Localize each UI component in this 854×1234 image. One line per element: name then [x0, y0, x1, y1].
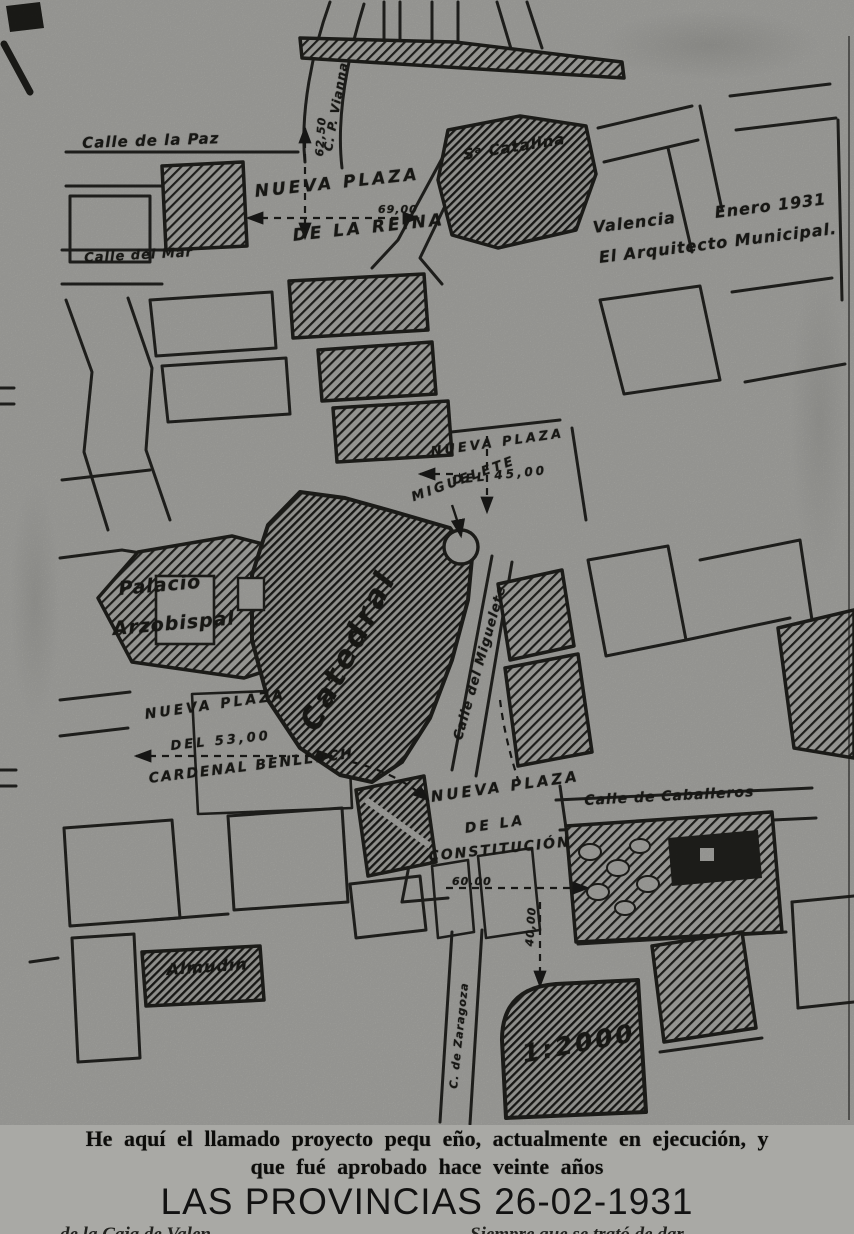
paper-grain [0, 0, 854, 1125]
cropped-article-text-right: Siempre que se trató de dar [470, 1224, 830, 1234]
dim-62-50: 62,50 [314, 116, 328, 156]
dim-60-00: 60,00 [452, 876, 492, 887]
cropped-article-text-left: de la Caja de Valen [60, 1224, 400, 1234]
caption-line-1: He aquí el llamado proyecto pequ eño, ac… [0, 1125, 854, 1153]
map-drawing [0, 0, 854, 1125]
caption-line-2: que fué aprobado hace veinte años [0, 1153, 854, 1181]
city-plan-map: Calle de la Paz C. P. Vianna NUEVA PLAZA… [0, 0, 854, 1125]
figure-caption: He aquí el llamado proyecto pequ eño, ac… [0, 1125, 854, 1234]
newspaper-scan: Calle de la Paz C. P. Vianna NUEVA PLAZA… [0, 0, 854, 1234]
source-date-overlay: LAS PROVINCIAS 26-02-1931 [0, 1183, 854, 1221]
dim-69-00: 69,00 [378, 204, 418, 215]
dim-40-00: 40,00 [524, 906, 538, 946]
